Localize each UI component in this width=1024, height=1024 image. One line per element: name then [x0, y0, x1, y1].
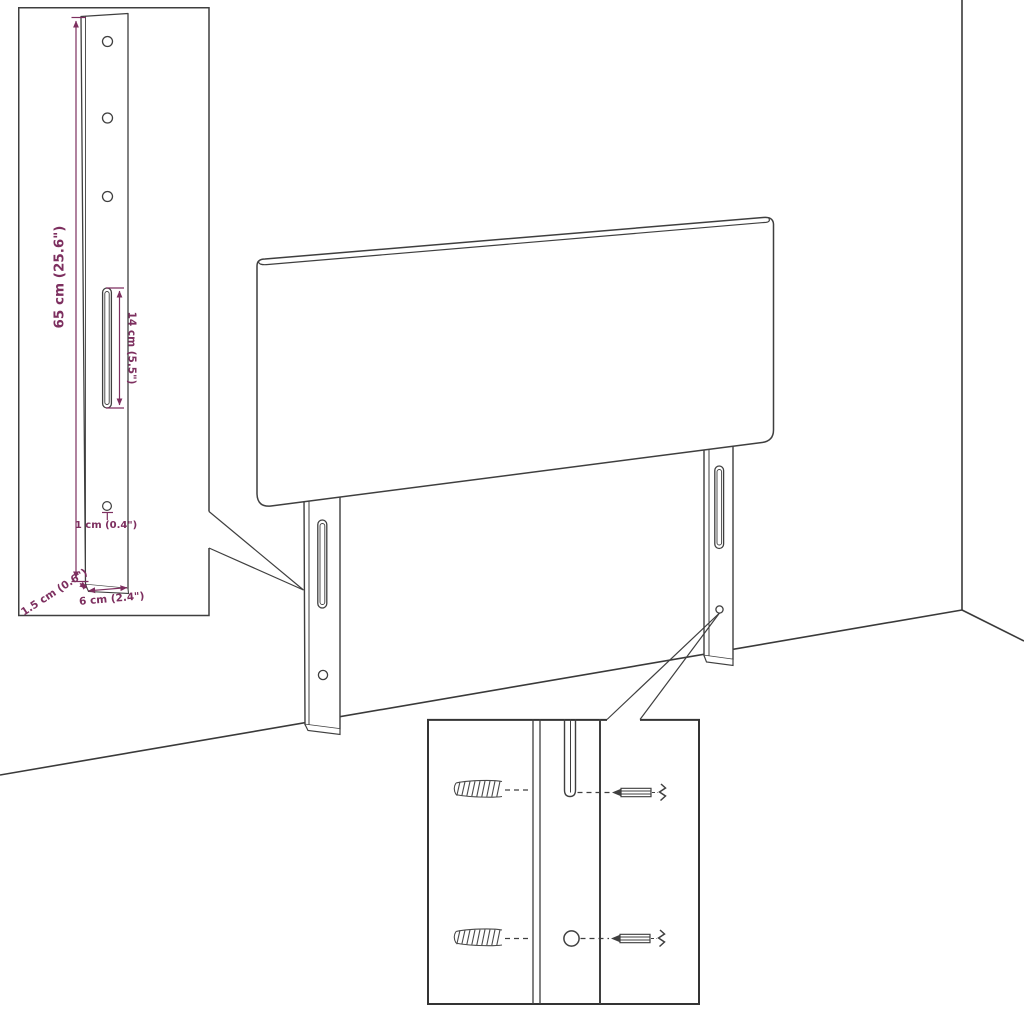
dim-label-slot-length: 14 cm (5.5") [126, 312, 138, 385]
dim-label-hole-diameter: 1 cm (0.4") [75, 520, 137, 531]
leg-screw-hole [318, 670, 327, 679]
headboard-assembly-diagram: 65 cm (25.6") 14 cm (5.5") 1 cm (0.4") 1… [0, 0, 1024, 1024]
callout-pointers [209, 512, 720, 720]
diagram-canvas: 65 cm (25.6") 14 cm (5.5") 1 cm (0.4") 1… [0, 0, 1024, 1024]
callout-line-hole-right [640, 613, 720, 720]
leg-slot [715, 466, 724, 549]
leg-detail-inset: 65 cm (25.6") 14 cm (5.5") 1 cm (0.4") 1… [18, 7, 209, 618]
left-mounting-leg [304, 492, 340, 735]
leg-screw-hole [716, 606, 723, 613]
mounting-detail-inset [427, 719, 700, 1005]
callout-line-hole-left [607, 613, 720, 720]
headboard-panel [257, 217, 774, 506]
callout-line-leg-upper [209, 512, 304, 591]
floor-line-right [962, 610, 1024, 641]
dim-label-leg-height: 65 cm (25.6") [52, 226, 68, 329]
right-mounting-leg [704, 444, 733, 666]
leg-slot [318, 520, 327, 608]
callout-line-leg-lower [209, 548, 304, 590]
